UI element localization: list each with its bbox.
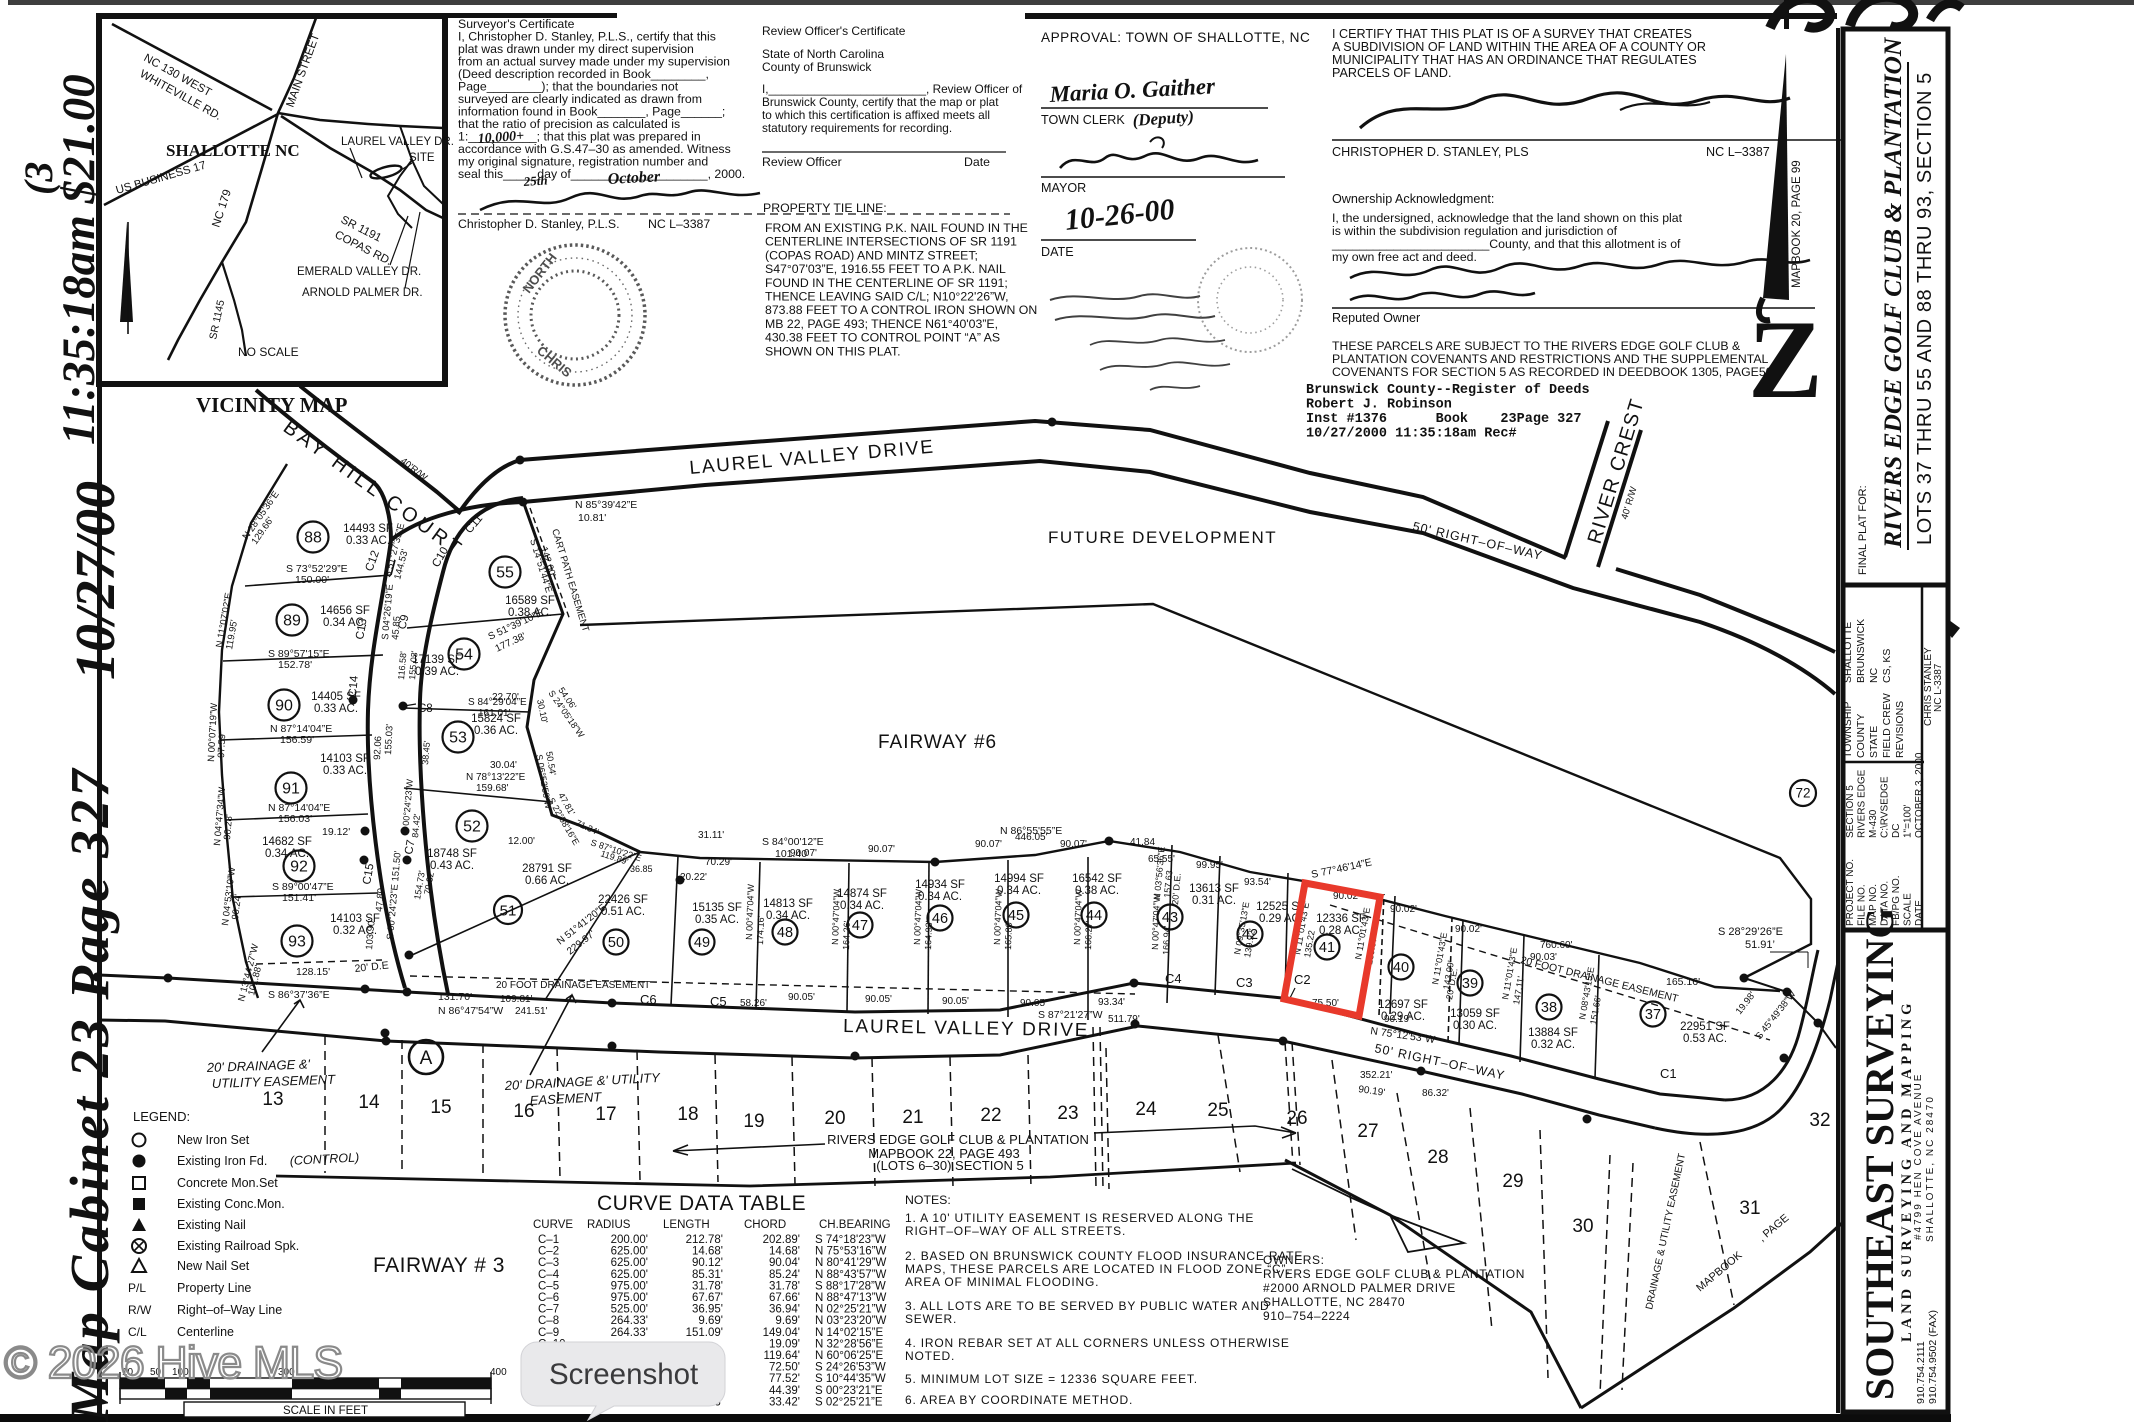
svg-text:A: A — [420, 1048, 433, 1069]
svg-text:C2: C2 — [1294, 972, 1311, 987]
svg-text:Existing Conc.Mon.: Existing Conc.Mon. — [177, 1197, 285, 1211]
svg-text:APPROVAL: TOWN OF SHALLOTTE: APPROVAL: TOWN OF SHALLOTTE, NC — [1041, 30, 1310, 45]
svg-text:© 2026 Hive MLS: © 2026 Hive MLS — [4, 1337, 342, 1388]
svg-text:THESE PARCELS ARE SUBJECT TO T: THESE PARCELS ARE SUBJECT TO THE RIVERS … — [1332, 339, 1741, 353]
svg-text:N 00°47'04”W: N 00°47'04”W — [830, 888, 842, 945]
svg-text:Existing Railroad Spk.: Existing Railroad Spk. — [177, 1239, 299, 1253]
svg-text:SECTION 5: SECTION 5 — [1845, 785, 1856, 838]
svg-text:seal this_____day of__________: seal this_____day of____________________… — [458, 167, 745, 181]
svg-text:CHORD: CHORD — [744, 1219, 786, 1231]
svg-text:C–5: C–5 — [538, 1280, 559, 1292]
svg-text:0.43 AC.: 0.43 AC. — [430, 860, 474, 872]
svg-text:9.69': 9.69' — [698, 1315, 723, 1327]
svg-text:10/27/2000 11:35:18am Rec#: 10/27/2000 11:35:18am Rec# — [1306, 427, 1517, 442]
svg-text:90.12': 90.12' — [692, 1257, 723, 1269]
svg-text:22.70': 22.70' — [492, 692, 519, 703]
svg-text:R/W: R/W — [128, 1303, 152, 1317]
svg-text:264.33': 264.33' — [611, 1315, 648, 1327]
svg-text:70.29': 70.29' — [705, 857, 732, 868]
svg-text:119.64': 119.64' — [763, 1350, 800, 1362]
svg-text:FUTURE DEVELOPMENT: FUTURE DEVELOPMENT — [1048, 528, 1277, 547]
svg-text:RIVERS EDGE GOLF CLUB & P: RIVERS EDGE GOLF CLUB & PLANTATION — [827, 1132, 1089, 1147]
svg-text:P/L: P/L — [128, 1281, 146, 1295]
svg-text:1. A 10' UTILITY EASEMENT IS R: 1. A 10' UTILITY EASEMENT IS RESERVED AL… — [905, 1211, 1254, 1225]
svg-text:TOWNSHIP: TOWNSHIP — [1842, 702, 1854, 758]
svg-text:88: 88 — [304, 530, 322, 547]
svg-text:S 02°25'21”E: S 02°25'21”E — [815, 1396, 883, 1408]
svg-text:72.50': 72.50' — [769, 1362, 800, 1374]
svg-text:S 87°21'27”W: S 87°21'27”W — [1038, 1009, 1103, 1021]
svg-text:31.11': 31.11' — [698, 830, 724, 841]
svg-text:N 00°47'04”W: N 00°47'04”W — [992, 888, 1004, 945]
svg-text:52: 52 — [463, 819, 481, 836]
svg-text:Brunswick County--Register of: Brunswick County--Register of Deeds — [1306, 383, 1590, 398]
svg-text:Existing Iron Fd.: Existing Iron Fd. — [177, 1154, 267, 1168]
svg-text:RIVERS EDGE: RIVERS EDGE — [1857, 769, 1868, 838]
svg-text:Map Cabinet 23 Page 327: Map Cabinet 23 Page 327 — [59, 766, 120, 1422]
svg-text:58.26': 58.26' — [740, 998, 767, 1009]
svg-text:29: 29 — [1502, 1171, 1523, 1192]
svg-text:352.21': 352.21' — [1360, 1070, 1393, 1081]
svg-text:0.51 AC.: 0.51 AC. — [601, 906, 645, 918]
svg-text:RIVERS EDGE GOLF CLUB & PLANTA: RIVERS EDGE GOLF CLUB & PLANTATION — [1878, 36, 1907, 549]
svg-text:86.32': 86.32' — [1422, 1088, 1449, 1099]
svg-text:PROJECT NO.: PROJECT NO. — [1845, 859, 1856, 926]
svg-text:92: 92 — [290, 859, 308, 876]
svg-text:760.60': 760.60' — [1540, 940, 1573, 951]
svg-text:S 86°37'36”E: S 86°37'36”E — [268, 989, 330, 1001]
svg-text:90.02': 90.02' — [1455, 924, 1482, 935]
svg-text:28791 SF: 28791 SF — [522, 863, 572, 875]
svg-text:Review Officer: Review Officer — [762, 155, 842, 169]
svg-text:A SUBDIVISION OF LAND WITHIN T: A SUBDIVISION OF LAND WITHIN THE AREA OF… — [1332, 40, 1706, 54]
svg-text:31.78': 31.78' — [769, 1280, 800, 1292]
svg-text:0.36 AC.: 0.36 AC. — [474, 725, 518, 737]
svg-text:State of North Carolina: State of North Carolina — [762, 47, 884, 61]
svg-text:975.00': 975.00' — [611, 1280, 648, 1292]
svg-text:S 74°18'23”W: S 74°18'23”W — [815, 1234, 886, 1246]
svg-text:MUNICIPALITY THAT HAS AN ORDIN: MUNICIPALITY THAT HAS AN ORDINANCE THAT … — [1332, 53, 1697, 67]
svg-text:0.34 AC.: 0.34 AC. — [766, 910, 810, 922]
svg-text:22426 SF: 22426 SF — [598, 894, 648, 906]
svg-text:19.12': 19.12' — [322, 826, 350, 838]
svg-text:C–1: C–1 — [538, 1234, 559, 1246]
svg-text:151.41': 151.41' — [282, 892, 316, 904]
svg-text:C–4: C–4 — [538, 1269, 560, 1281]
svg-text:10/27/00: 10/27/00 — [65, 481, 127, 680]
svg-text:MAPS, THESE PARCELS ARE LOCATE: MAPS, THESE PARCELS ARE LOCATED IN FLOOD… — [905, 1262, 1290, 1276]
svg-text:RIVERS EDGE GOLF CLUB & PLANTA: RIVERS EDGE GOLF CLUB & PLANTATION — [1263, 1267, 1525, 1281]
svg-text:21: 21 — [902, 1107, 923, 1128]
svg-text:I,________________________, Re: I,________________________, Review Offic… — [762, 82, 1023, 96]
svg-text:14934 SF: 14934 SF — [915, 879, 965, 891]
svg-text:5. MINIMUM LOT SIZE = 12336 SQ: 5. MINIMUM LOT SIZE = 12336 SQUARE FEET. — [905, 1372, 1198, 1386]
svg-text:166.27': 166.27' — [1083, 920, 1094, 950]
svg-text:N 85°39'42”E: N 85°39'42”E — [575, 499, 637, 511]
svg-text:I CERTIFY THAT THIS PLAT IS OF: I CERTIFY THAT THIS PLAT IS OF A SURVEY … — [1332, 27, 1692, 41]
svg-text:72: 72 — [1795, 786, 1810, 801]
svg-text:C–7: C–7 — [538, 1304, 559, 1316]
svg-text:48: 48 — [777, 925, 793, 941]
svg-text:M-430: M-430 — [1868, 809, 1879, 838]
svg-text:_______________________County,: _______________________County, and that … — [1331, 237, 1681, 251]
svg-text:October: October — [607, 168, 661, 188]
svg-text:90: 90 — [275, 698, 293, 715]
svg-text:44.39': 44.39' — [769, 1385, 800, 1397]
svg-text:9.69': 9.69' — [775, 1315, 800, 1327]
svg-text:my own free act and deed.: my own free act and deed. — [1332, 250, 1477, 264]
svg-text:0.39 AC.: 0.39 AC. — [415, 666, 459, 678]
svg-text:24: 24 — [1135, 1099, 1157, 1120]
svg-text:Property Line: Property Line — [177, 1281, 251, 1295]
svg-text:(COPAS ROAD) AND MINTZ STREET;: (COPAS ROAD) AND MINTZ STREET; — [765, 248, 978, 262]
svg-text:90.03': 90.03' — [1530, 952, 1557, 963]
svg-text:0.34 AC.: 0.34 AC. — [323, 617, 367, 629]
svg-text:SEWER.: SEWER. — [905, 1312, 957, 1326]
svg-text:FAIRWAY #6: FAIRWAY #6 — [878, 732, 997, 753]
svg-text:155.03': 155.03' — [383, 724, 396, 756]
svg-text:16542 SF: 16542 SF — [1072, 873, 1122, 885]
svg-text:30.04': 30.04' — [490, 760, 517, 771]
svg-text:23: 23 — [1057, 1103, 1078, 1124]
svg-text:39: 39 — [1462, 976, 1478, 992]
svg-text:13059 SF: 13059 SF — [1450, 1008, 1500, 1020]
svg-text:13884 SF: 13884 SF — [1528, 1027, 1578, 1039]
svg-text:910–754–2224: 910–754–2224 — [1263, 1309, 1350, 1323]
svg-text:CS, KS: CS, KS — [1881, 649, 1893, 683]
svg-text:SOUTHEAST SURVEYING: SOUTHEAST SURVEYING — [1857, 908, 1902, 1400]
svg-text:18: 18 — [677, 1104, 698, 1125]
svg-text:SHALLOTTE, NC 28470: SHALLOTTE, NC 28470 — [1263, 1295, 1405, 1309]
svg-text:625.00': 625.00' — [611, 1269, 648, 1281]
svg-text:14.68': 14.68' — [769, 1246, 800, 1258]
svg-text:S 24°26'53”W: S 24°26'53”W — [815, 1362, 886, 1374]
svg-text:32: 32 — [1809, 1110, 1830, 1131]
svg-text:#4799 HEN COVE AVENUE: #4799 HEN COVE AVENUE — [1913, 1073, 1924, 1240]
svg-text:20: 20 — [824, 1108, 845, 1129]
svg-text:C7: C7 — [403, 839, 417, 856]
svg-text:400: 400 — [490, 1367, 507, 1378]
svg-text:CENTERLINE INTERSECTIONS OF SR: CENTERLINE INTERSECTIONS OF SR 1191 — [765, 235, 1017, 249]
svg-text:14682 SF: 14682 SF — [262, 836, 312, 848]
svg-text:41: 41 — [1319, 940, 1335, 956]
svg-text:264.33': 264.33' — [611, 1327, 648, 1339]
svg-text:19.09': 19.09' — [769, 1338, 800, 1350]
svg-text:N 88°47'13”W: N 88°47'13”W — [815, 1292, 886, 1304]
svg-text:0.32 AC.: 0.32 AC. — [1531, 1039, 1575, 1051]
svg-text:90.02': 90.02' — [1390, 904, 1417, 915]
svg-text:(3: (3 — [16, 162, 61, 195]
svg-text:DATE: DATE — [1041, 245, 1074, 259]
svg-text:N 88°43'57”W: N 88°43'57”W — [815, 1269, 886, 1281]
svg-text:PROPERTY TIE LINE:: PROPERTY TIE LINE: — [763, 201, 887, 215]
svg-text:Date: Date — [964, 155, 990, 169]
svg-text:C:\RVSEDGE: C:\RVSEDGE — [1880, 776, 1891, 838]
svg-text:DATE: DATE — [1914, 900, 1925, 926]
svg-text:CHRISTOPHER D. STANLEY, PLS: CHRISTOPHER D. STANLEY, PLS — [1332, 145, 1529, 159]
svg-text:PLANTATION COVENANTS AND RESTR: PLANTATION COVENANTS AND RESTRICTIONS AN… — [1332, 352, 1769, 366]
svg-text:33.42': 33.42' — [769, 1396, 800, 1408]
svg-text:625.00': 625.00' — [611, 1257, 648, 1269]
svg-text:0.33 AC.: 0.33 AC. — [346, 535, 390, 547]
svg-text:MAPBOOK 20, PAGE 99: MAPBOOK 20, PAGE 99 — [1791, 160, 1803, 288]
svg-text:93.34': 93.34' — [1098, 997, 1125, 1008]
svg-text:149.04': 149.04' — [763, 1327, 800, 1339]
svg-text:Concrete Mon.Set: Concrete Mon.Set — [177, 1176, 278, 1190]
svg-text:17: 17 — [595, 1104, 616, 1125]
svg-text:93.54': 93.54' — [1244, 877, 1271, 888]
svg-text:S 88°17'28”W: S 88°17'28”W — [815, 1280, 886, 1292]
svg-text:101.40': 101.40' — [775, 848, 809, 860]
svg-text:statutory requirements for rec: statutory requirements for recording. — [762, 121, 952, 135]
svg-text:13: 13 — [262, 1089, 283, 1110]
svg-text:30: 30 — [1572, 1216, 1593, 1237]
svg-text:15: 15 — [430, 1097, 451, 1118]
svg-text:Review Officer's Certificate: Review Officer's Certificate — [762, 24, 906, 38]
svg-text:RIGHT–OF–WAY OF ALL STREETS.: RIGHT–OF–WAY OF ALL STREETS. — [905, 1224, 1126, 1238]
svg-text:LAUREL VALLEY DR.: LAUREL VALLEY DR. — [341, 136, 454, 148]
svg-text:Brunswick County, certify that: Brunswick County, certify that the map o… — [762, 95, 999, 109]
svg-text:12697 SF: 12697 SF — [1378, 999, 1428, 1011]
svg-text:166.94': 166.94' — [1161, 925, 1172, 955]
svg-text:174.16': 174.16' — [755, 915, 766, 945]
svg-text:is within the subdivision regu: is within the subdivision regulation and… — [1332, 224, 1618, 238]
svg-text:131.70': 131.70' — [438, 991, 472, 1003]
svg-text:SITE: SITE — [409, 152, 435, 164]
svg-text:50: 50 — [608, 935, 624, 951]
svg-text:67.67': 67.67' — [692, 1292, 723, 1304]
svg-text:4. IRON REBAR SET AT ALL CORNE: 4. IRON REBAR SET AT ALL CORNERS UNLESS … — [905, 1336, 1290, 1350]
svg-text:99.95': 99.95' — [1196, 860, 1223, 871]
svg-text:S47°07'03”E, 1916.55 FEET TO A: S47°07'03”E, 1916.55 FEET TO A P.K. NAIL — [765, 262, 1006, 276]
svg-text:C–8: C–8 — [538, 1315, 559, 1327]
svg-text:N 60°06'25”E: N 60°06'25”E — [815, 1350, 883, 1362]
svg-text:31: 31 — [1739, 1198, 1760, 1219]
svg-text:85.24': 85.24' — [769, 1269, 800, 1281]
svg-text:38: 38 — [1541, 1000, 1557, 1016]
svg-text:164.93': 164.93' — [923, 920, 934, 950]
svg-text:N 86°47'54”W: N 86°47'54”W — [438, 1005, 503, 1017]
svg-text:NC L-3387: NC L-3387 — [1933, 663, 1944, 712]
svg-text:164.26': 164.26' — [841, 920, 852, 950]
svg-text:0.66 AC.: 0.66 AC. — [525, 875, 569, 887]
svg-text:MB 22, PAGE 493; THENCE N61°40: MB 22, PAGE 493; THENCE N61°40'03”E, — [765, 317, 998, 331]
svg-text:31.78': 31.78' — [692, 1280, 723, 1292]
svg-text:0.53 AC.: 0.53 AC. — [1683, 1033, 1727, 1045]
svg-text:18748 SF: 18748 SF — [427, 848, 477, 860]
svg-text:S 28°29’26”E: S 28°29’26”E — [1718, 926, 1783, 938]
svg-text:ARNOLD PALMER DR.: ARNOLD PALMER DR. — [302, 287, 423, 299]
svg-text:77.52': 77.52' — [769, 1373, 800, 1385]
svg-text:NC L–3387: NC L–3387 — [648, 217, 710, 231]
svg-text:19: 19 — [743, 1111, 764, 1132]
svg-text:New Nail Set: New Nail Set — [177, 1259, 250, 1273]
svg-text:C3: C3 — [1236, 975, 1253, 990]
svg-text:Existing Nail: Existing Nail — [177, 1218, 246, 1232]
svg-text:PARCELS OF LAND.: PARCELS OF LAND. — [1332, 66, 1451, 80]
svg-text:14103 SF: 14103 SF — [320, 753, 370, 765]
svg-text:47.80: 47.80 — [374, 888, 387, 913]
svg-text:S 10°44'35”W: S 10°44'35”W — [815, 1373, 886, 1385]
svg-text:36.94': 36.94' — [769, 1304, 800, 1316]
svg-text:10.81': 10.81' — [578, 512, 606, 524]
svg-text:N 02°25'21”W: N 02°25'21”W — [815, 1304, 886, 1316]
svg-text:OWNERS:: OWNERS: — [1263, 1253, 1325, 1267]
svg-text:151.09': 151.09' — [686, 1327, 723, 1339]
svg-text:Robert J. Robinson: Robert J. Robinson — [1306, 398, 1452, 413]
svg-text:89: 89 — [283, 613, 301, 630]
svg-text:COUNTY: COUNTY — [1855, 714, 1867, 758]
svg-text:Screenshot: Screenshot — [549, 1358, 698, 1391]
svg-text:156.59': 156.59' — [280, 734, 314, 746]
svg-text:C–2: C–2 — [538, 1246, 559, 1258]
svg-text:53: 53 — [449, 730, 467, 747]
svg-text:27: 27 — [1357, 1121, 1378, 1142]
svg-text:14493 SF: 14493 SF — [343, 523, 393, 535]
svg-text:14.68': 14.68' — [692, 1246, 723, 1258]
svg-text:(LOTS 6–30) SECTION 5: (LOTS 6–30) SECTION 5 — [876, 1158, 1023, 1173]
svg-text:Reputed Owner: Reputed Owner — [1332, 311, 1420, 325]
svg-text:THENCE LEAVING SAID C/L; N10°2: THENCE LEAVING SAID C/L; N10°22'26”W, — [765, 290, 1009, 304]
svg-text:FIELD CREW: FIELD CREW — [1881, 693, 1893, 758]
svg-text:90.05': 90.05' — [942, 996, 969, 1007]
svg-text:202.89': 202.89' — [763, 1234, 800, 1246]
svg-text:25th: 25th — [522, 172, 548, 189]
svg-text:FOUND IN THE CENTERLINE OF SR: FOUND IN THE CENTERLINE OF SR 1191; — [765, 276, 1008, 290]
svg-text:165.16': 165.16' — [1666, 976, 1700, 988]
svg-text:26: 26 — [1286, 1108, 1307, 1129]
svg-text:165.80': 165.80' — [1003, 920, 1014, 950]
svg-text:NOTED.: NOTED. — [905, 1349, 955, 1363]
svg-text:SCALE IN FEET: SCALE IN FEET — [283, 1405, 368, 1417]
svg-text:156.03': 156.03' — [278, 813, 312, 825]
svg-text:NC L–3387: NC L–3387 — [1706, 145, 1770, 159]
svg-text:90.05': 90.05' — [788, 992, 815, 1003]
svg-text:91: 91 — [282, 781, 300, 798]
svg-text:Ownership Acknowledgment:: Ownership Acknowledgment: — [1332, 192, 1494, 206]
svg-text:90.07': 90.07' — [1060, 839, 1087, 850]
svg-text:N 00°47'04”W: N 00°47'04”W — [912, 888, 924, 945]
svg-text:37: 37 — [1645, 1007, 1661, 1023]
svg-text:FAIRWAY # 3: FAIRWAY # 3 — [373, 1254, 505, 1277]
svg-text:511.79': 511.79' — [1108, 1014, 1140, 1025]
svg-text:SHOWN ON THIS PLAT.: SHOWN ON THIS PLAT. — [765, 344, 901, 358]
svg-text:16589 SF: 16589 SF — [505, 595, 555, 607]
svg-text:22: 22 — [980, 1105, 1001, 1126]
svg-text:40: 40 — [1393, 960, 1409, 976]
svg-text:51.91’: 51.91’ — [1745, 939, 1775, 951]
svg-text:REVISIONS: REVISIONS — [1894, 701, 1906, 758]
svg-text:FROM AN EXISTING P.K. NAIL FOU: FROM AN EXISTING P.K. NAIL FOUND IN THE — [765, 221, 1028, 235]
svg-text:LOTS 37 THRU 55 AND 88 THRU 93: LOTS 37 THRU 55 AND 88 THRU 93, SECTION … — [1914, 72, 1936, 545]
svg-text:84.42': 84.42' — [410, 813, 422, 838]
svg-text:0.33 AC.: 0.33 AC. — [314, 703, 358, 715]
svg-text:0.35 AC.: 0.35 AC. — [695, 914, 739, 926]
svg-text:SHALLOTTE: SHALLOTTE — [1842, 622, 1854, 683]
svg-text:#2000 ARNOLD PALMER DRIVE: #2000 ARNOLD PALMER DRIVE — [1263, 1281, 1456, 1295]
svg-text:49: 49 — [694, 935, 710, 951]
svg-text:N 00°47'04”W: N 00°47'04”W — [1072, 888, 1084, 945]
svg-text:0.34 AC.: 0.34 AC. — [265, 848, 309, 860]
svg-text:20 FOOT DRAINAGE EASEMENT: 20 FOOT DRAINAGE EASEMENT — [496, 980, 650, 991]
svg-text:41.84: 41.84 — [1130, 837, 1155, 848]
svg-text:200.00': 200.00' — [611, 1234, 648, 1246]
svg-text:County of Brunswick: County of Brunswick — [762, 60, 872, 74]
svg-text:15135 SF: 15135 SF — [692, 902, 742, 914]
svg-text:159.68': 159.68' — [476, 783, 509, 794]
svg-text:SCALE: SCALE — [1903, 893, 1914, 926]
svg-text:FINAL PLAT FOR:: FINAL PLAT FOR: — [1857, 485, 1869, 575]
svg-text:43: 43 — [1162, 910, 1178, 926]
svg-text:0.30 AC.: 0.30 AC. — [1453, 1020, 1497, 1032]
svg-text:2. BASED ON BRUNSWICK COUNTY F: 2. BASED ON BRUNSWICK COUNTY FLOOD INSUR… — [905, 1249, 1303, 1263]
svg-text:430.38 FEET TO CONTROL POINT “: 430.38 FEET TO CONTROL POINT “A” AS — [765, 331, 1000, 345]
svg-text:161.01': 161.01' — [478, 708, 511, 719]
svg-text:90.07': 90.07' — [868, 844, 895, 855]
svg-text:0.34 AC.: 0.34 AC. — [840, 900, 884, 912]
svg-text:STATE: STATE — [1868, 726, 1880, 758]
svg-text:AREA OF MINIMAL FLOODING.: AREA OF MINIMAL FLOODING. — [905, 1275, 1099, 1289]
svg-text:55: 55 — [496, 565, 514, 582]
svg-text:109.81': 109.81' — [500, 994, 533, 1005]
svg-text:0.31 AC.: 0.31 AC. — [1192, 895, 1236, 907]
svg-text:12.00': 12.00' — [508, 836, 535, 847]
svg-text:EMERALD VALLEY DR.: EMERALD VALLEY DR. — [297, 266, 421, 278]
svg-text:N 00°47'04”W: N 00°47'04”W — [1150, 893, 1162, 950]
svg-text:0.34 AC.: 0.34 AC. — [918, 891, 962, 903]
svg-text:22951 SF: 22951 SF — [1680, 1021, 1730, 1033]
svg-text:S 00°23'21”E: S 00°23'21”E — [815, 1385, 883, 1397]
svg-text:S 84°00'12”E: S 84°00'12”E — [762, 836, 824, 848]
svg-text:LENGTH: LENGTH — [663, 1219, 710, 1231]
svg-text:N 78°13'22”E: N 78°13'22”E — [466, 772, 526, 783]
svg-text:0.33 AC.: 0.33 AC. — [323, 765, 367, 777]
svg-text:N 00°47'04”W: N 00°47'04”W — [744, 883, 756, 940]
svg-text:N 14°02'15”E: N 14°02'15”E — [815, 1327, 883, 1339]
svg-text:90.05': 90.05' — [865, 994, 892, 1005]
svg-text:212.78': 212.78' — [686, 1234, 723, 1246]
svg-text:910.754.9502 (FAX): 910.754.9502 (FAX) — [1927, 1310, 1939, 1404]
svg-text:I, the undersigned, acknowledg: I, the undersigned, acknowledge that the… — [1332, 211, 1683, 225]
svg-text:525.00': 525.00' — [611, 1304, 648, 1316]
svg-text:13613 SF: 13613 SF — [1189, 883, 1239, 895]
svg-text:C–6: C–6 — [538, 1292, 559, 1304]
svg-text:67.66': 67.66' — [769, 1292, 800, 1304]
svg-text:17139 SF: 17139 SF — [412, 654, 462, 666]
svg-text:SHALLOTTE, NC 28470: SHALLOTTE, NC 28470 — [1925, 1095, 1936, 1242]
svg-text:38.45': 38.45' — [420, 740, 432, 765]
svg-text:25: 25 — [1207, 1100, 1228, 1121]
svg-text:910.754.2111: 910.754.2111 — [1915, 1341, 1927, 1404]
svg-text:873.88 FEET TO A CONTROL IRON: 873.88 FEET TO A CONTROL IRON SHOWN ON — [765, 303, 1037, 317]
svg-text:90.05': 90.05' — [1020, 998, 1047, 1009]
svg-text:NO SCALE: NO SCALE — [238, 345, 299, 359]
svg-text:COVENANTS FOR SECTION 5 AS REC: COVENANTS FOR SECTION 5 AS RECORDED IN D… — [1332, 365, 1773, 379]
svg-text:128.15': 128.15' — [296, 966, 330, 978]
svg-text:14874 SF: 14874 SF — [837, 888, 887, 900]
svg-text:90.19': 90.19' — [1384, 1014, 1411, 1025]
svg-text:36.85: 36.85 — [630, 864, 653, 874]
svg-text:14656 SF: 14656 SF — [320, 605, 370, 617]
svg-text:152.78': 152.78' — [278, 659, 312, 671]
svg-text:New Iron Set: New Iron Set — [177, 1133, 250, 1147]
svg-text:N 75°53'16”W: N 75°53'16”W — [815, 1246, 886, 1258]
svg-text:93: 93 — [288, 934, 306, 951]
svg-text:14: 14 — [358, 1092, 380, 1113]
svg-text:C–3: C–3 — [538, 1257, 559, 1269]
svg-text:150.00': 150.00' — [295, 574, 329, 586]
svg-text:90.04': 90.04' — [769, 1257, 800, 1269]
